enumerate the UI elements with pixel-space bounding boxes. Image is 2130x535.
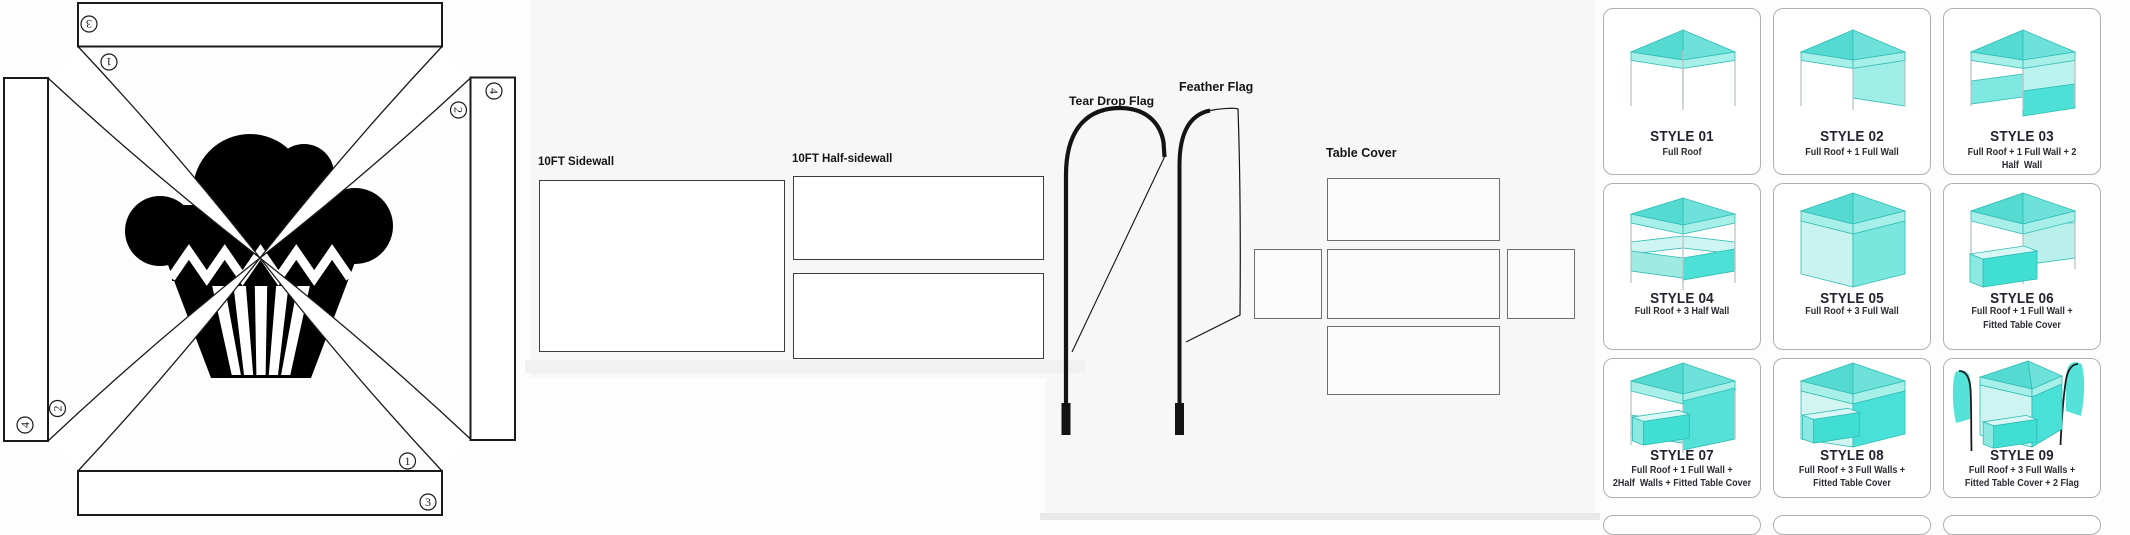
svg-text:4: 4 [487, 88, 501, 94]
svg-text:2: 2 [451, 107, 465, 113]
svg-text:1: 1 [106, 55, 112, 69]
svg-text:3: 3 [425, 495, 431, 509]
svg-text:2: 2 [51, 406, 65, 412]
svg-text:3: 3 [86, 17, 92, 31]
svg-text:4: 4 [18, 422, 32, 428]
svg-text:1: 1 [405, 454, 411, 468]
